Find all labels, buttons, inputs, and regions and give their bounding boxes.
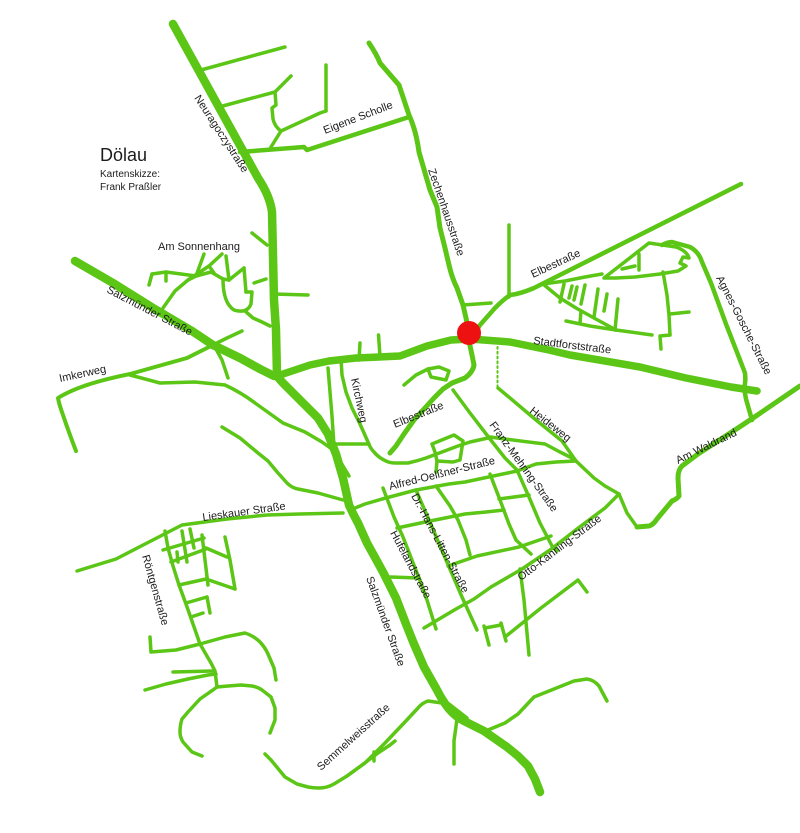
svg-text:Am Sonnenhang: Am Sonnenhang (158, 241, 240, 253)
svg-text:Frank Praßler: Frank Praßler (100, 182, 162, 193)
svg-text:Kartenskizze:: Kartenskizze: (100, 169, 160, 180)
svg-text:Dölau: Dölau (100, 145, 147, 165)
